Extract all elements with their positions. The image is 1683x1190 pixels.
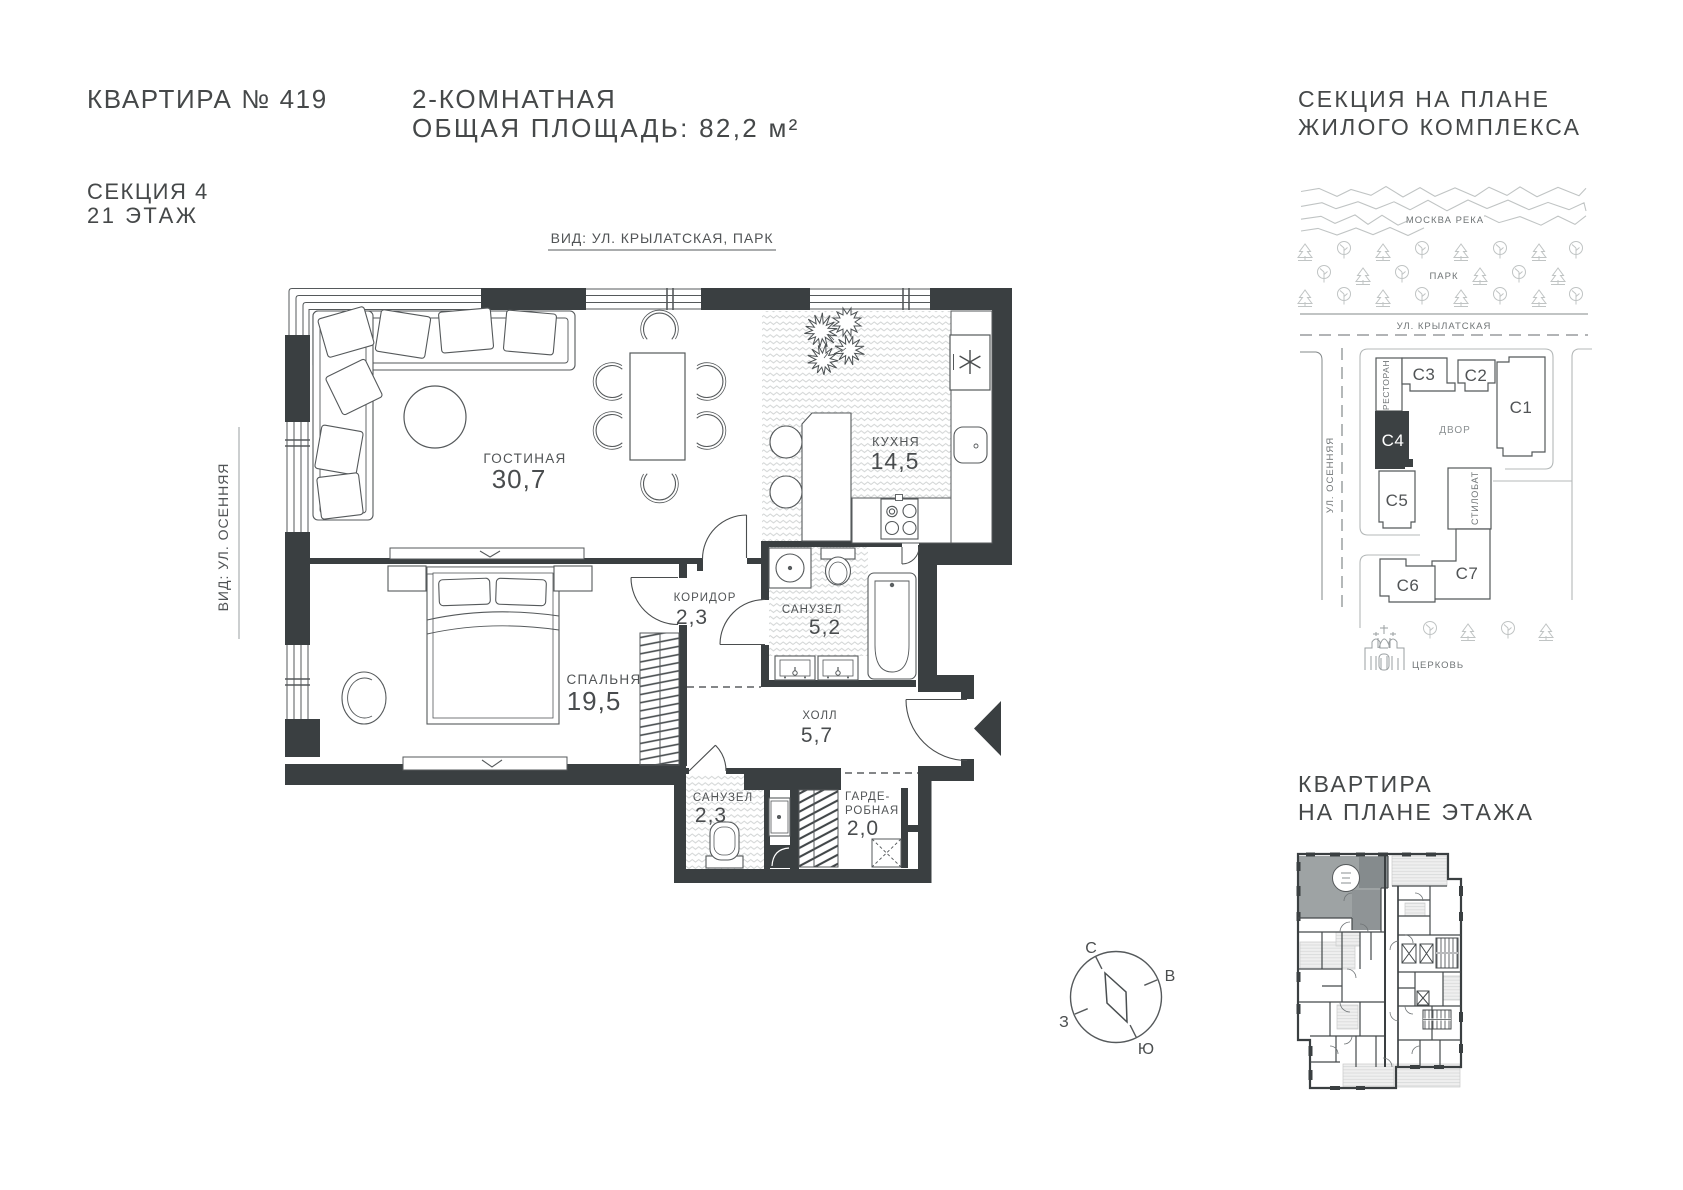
svg-text:14,5: 14,5 [871,448,920,474]
svg-text:19,5: 19,5 [567,686,622,716]
svg-text:2,3: 2,3 [695,804,727,827]
svg-text:С: С [1085,940,1097,957]
svg-text:ЖИЛОГО КОМПЛЕКСА: ЖИЛОГО КОМПЛЕКСА [1298,114,1581,140]
svg-text:З: З [1059,1014,1069,1031]
svg-text:С6: С6 [1397,576,1420,595]
svg-text:ХОЛЛ: ХОЛЛ [802,710,837,722]
svg-text:С2: С2 [1465,366,1488,385]
svg-text:5,7: 5,7 [801,724,833,747]
svg-text:2,0: 2,0 [847,817,879,840]
svg-text:ОБЩАЯ ПЛОЩАДЬ: 82,2 м²: ОБЩАЯ ПЛОЩАДЬ: 82,2 м² [412,113,800,143]
svg-text:СТИЛОБАТ: СТИЛОБАТ [1470,471,1480,525]
svg-text:КУХНЯ: КУХНЯ [872,435,920,449]
svg-text:С5: С5 [1386,491,1409,510]
svg-text:РОБНАЯ: РОБНАЯ [845,805,899,817]
svg-text:СПАЛЬНЯ: СПАЛЬНЯ [566,672,641,687]
svg-text:КВАРТИРА: КВАРТИРА [1298,771,1433,797]
svg-text:МОСКВА РЕКА: МОСКВА РЕКА [1406,215,1484,226]
svg-text:УЛ. КРЫЛАТСКАЯ: УЛ. КРЫЛАТСКАЯ [1397,321,1492,332]
svg-text:ГАРДЕ-: ГАРДЕ- [845,791,890,803]
svg-text:РЕСТОРАН: РЕСТОРАН [1381,360,1391,410]
svg-text:2-КОМНАТНАЯ: 2-КОМНАТНАЯ [412,84,617,114]
svg-text:С7: С7 [1456,564,1479,583]
svg-text:30,7: 30,7 [492,464,547,494]
svg-text:САНУЗЕЛ: САНУЗЕЛ [782,604,842,616]
svg-text:Ю: Ю [1138,1041,1154,1058]
svg-text:ДВОР: ДВОР [1439,425,1471,436]
svg-text:2,3: 2,3 [676,606,708,629]
svg-text:ВИД: УЛ. ОСЕННЯЯ: ВИД: УЛ. ОСЕННЯЯ [215,463,231,612]
svg-text:ВИД: УЛ. КРЫЛАТСКАЯ, ПАРК: ВИД: УЛ. КРЫЛАТСКАЯ, ПАРК [551,230,774,246]
svg-text:С4: С4 [1382,431,1405,450]
svg-text:В: В [1165,968,1176,985]
svg-text:НА ПЛАНЕ ЭТАЖА: НА ПЛАНЕ ЭТАЖА [1298,799,1534,825]
svg-text:С1: С1 [1510,398,1533,417]
svg-text:КОРИДОР: КОРИДОР [674,592,737,604]
svg-text:САНУЗЕЛ: САНУЗЕЛ [693,792,753,804]
svg-text:СЕКЦИЯ 4: СЕКЦИЯ 4 [87,179,209,204]
svg-text:УЛ. ОСЕННЯЯ: УЛ. ОСЕННЯЯ [1325,437,1336,513]
svg-text:С3: С3 [1413,365,1436,384]
svg-text:ЦЕРКОВЬ: ЦЕРКОВЬ [1412,660,1464,671]
svg-text:21 ЭТАЖ: 21 ЭТАЖ [87,203,199,228]
svg-text:5,2: 5,2 [809,616,841,639]
svg-text:КВАРТИРА № 419: КВАРТИРА № 419 [87,84,328,114]
svg-text:ПАРК: ПАРК [1429,271,1458,282]
svg-text:СЕКЦИЯ НА ПЛАНЕ: СЕКЦИЯ НА ПЛАНЕ [1298,86,1550,112]
